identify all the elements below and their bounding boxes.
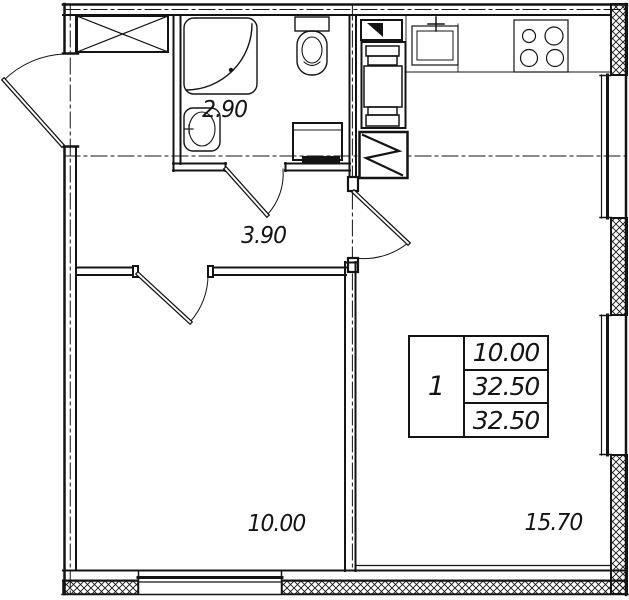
toilet [295,17,329,75]
kitchen-door [354,192,408,259]
window-bottom [138,571,282,594]
rooms-count-cell: 1 [410,337,465,436]
overall-area-cell: 32.50 [465,402,547,436]
living-area-cell: 10.00 [465,337,547,369]
window-right-upper [600,75,611,218]
apartment-info-table: 1 10.00 32.50 32.50 [408,335,549,438]
stove [514,20,568,72]
hallway-area-label: 3.90 [241,223,286,249]
kitchen-sink [412,17,458,65]
kitchen-living-area-label: 15.70 [525,510,583,536]
bedroom-door [138,274,208,322]
total-area-cell: 32.50 [465,369,547,403]
shower [184,18,257,94]
bedroom-area-label: 10.00 [248,511,306,537]
room-divider-wall [345,262,356,571]
window-right-lower [600,315,611,455]
vent-shaft [360,20,408,178]
washing-machine [293,123,342,163]
bathroom-area-label: 2.90 [202,97,247,123]
entrance-door [4,54,64,145]
wardrobe [77,16,168,52]
floor-plan: 2.90 3.90 10.00 15.70 1 10.00 32.50 32.5… [0,0,629,600]
hallway-wall [77,266,346,277]
vent-flag-icon [367,23,383,37]
bathroom-door [226,169,283,215]
